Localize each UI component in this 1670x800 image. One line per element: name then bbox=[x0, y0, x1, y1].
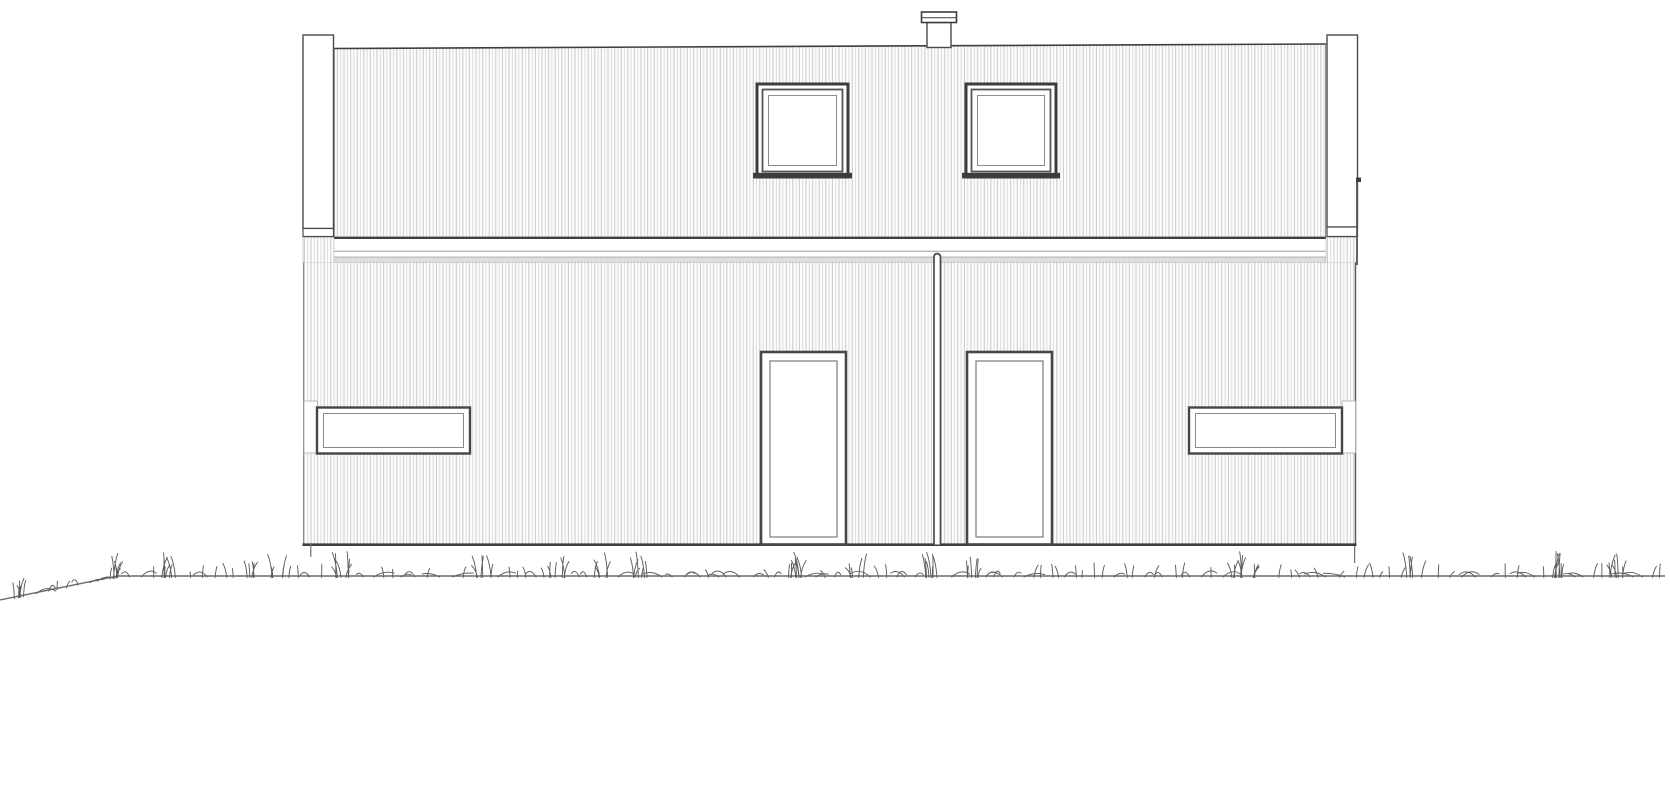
chimney-body bbox=[927, 23, 951, 48]
grass-strokes bbox=[13, 552, 1660, 599]
band-corner-right bbox=[1326, 238, 1357, 263]
upper-window-right-outer bbox=[966, 84, 1056, 177]
elevation-canvas bbox=[0, 0, 1670, 800]
upper-window-left-sill bbox=[753, 173, 852, 179]
grass bbox=[13, 552, 1660, 599]
party-wall-divider bbox=[934, 254, 941, 545]
lower-window-right-pad bbox=[1342, 401, 1356, 453]
ground-line bbox=[0, 576, 1665, 600]
left-post-cap bbox=[303, 229, 334, 237]
right-edge-tick bbox=[1356, 178, 1361, 183]
band-corner-left bbox=[303, 238, 334, 263]
building-elevation bbox=[0, 12, 1665, 600]
lower-window-left-outer bbox=[317, 408, 470, 454]
lower-window-right-outer bbox=[1189, 408, 1342, 454]
right-post bbox=[1327, 35, 1358, 227]
band-fascia bbox=[334, 238, 1327, 257]
door-right-outer bbox=[967, 352, 1052, 545]
left-post bbox=[303, 35, 334, 229]
elevation-svg bbox=[0, 0, 1670, 800]
right-post-cap bbox=[1327, 227, 1358, 237]
band-drip-edge bbox=[334, 257, 1327, 263]
door-left-outer bbox=[761, 352, 846, 545]
upper-window-left-outer bbox=[757, 84, 848, 177]
lower-window-left-pad bbox=[304, 401, 318, 453]
upper-window-right-sill bbox=[962, 173, 1060, 179]
